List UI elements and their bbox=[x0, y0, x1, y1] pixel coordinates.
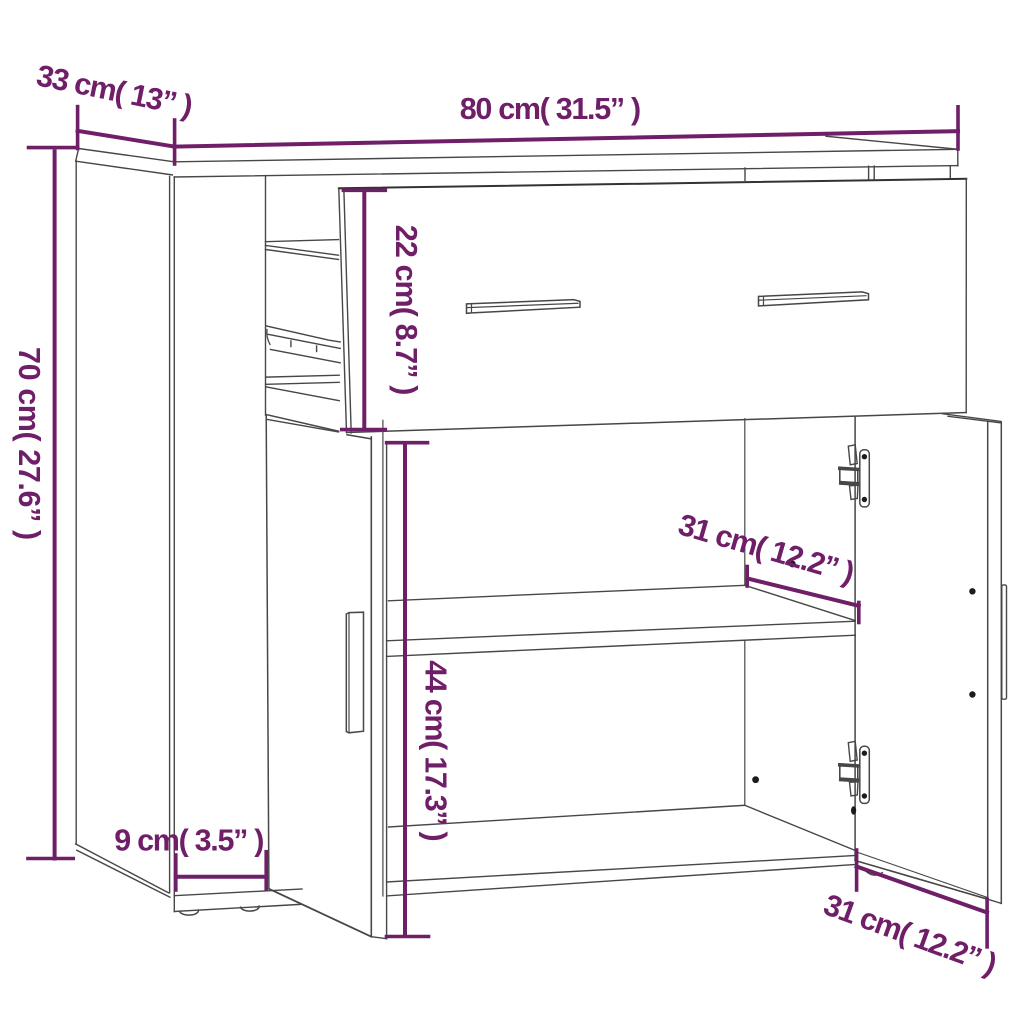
svg-text:70 cm( 27.6” ): 70 cm( 27.6” ) bbox=[12, 347, 46, 540]
svg-text:22 cm( 8.7” ): 22 cm( 8.7” ) bbox=[389, 225, 423, 395]
svg-text:44 cm( 17.3” ): 44 cm( 17.3” ) bbox=[418, 660, 452, 840]
svg-text:9 cm( 3.5” ): 9 cm( 3.5” ) bbox=[114, 824, 263, 858]
svg-text:80 cm( 31.5” ): 80 cm( 31.5” ) bbox=[460, 92, 640, 126]
